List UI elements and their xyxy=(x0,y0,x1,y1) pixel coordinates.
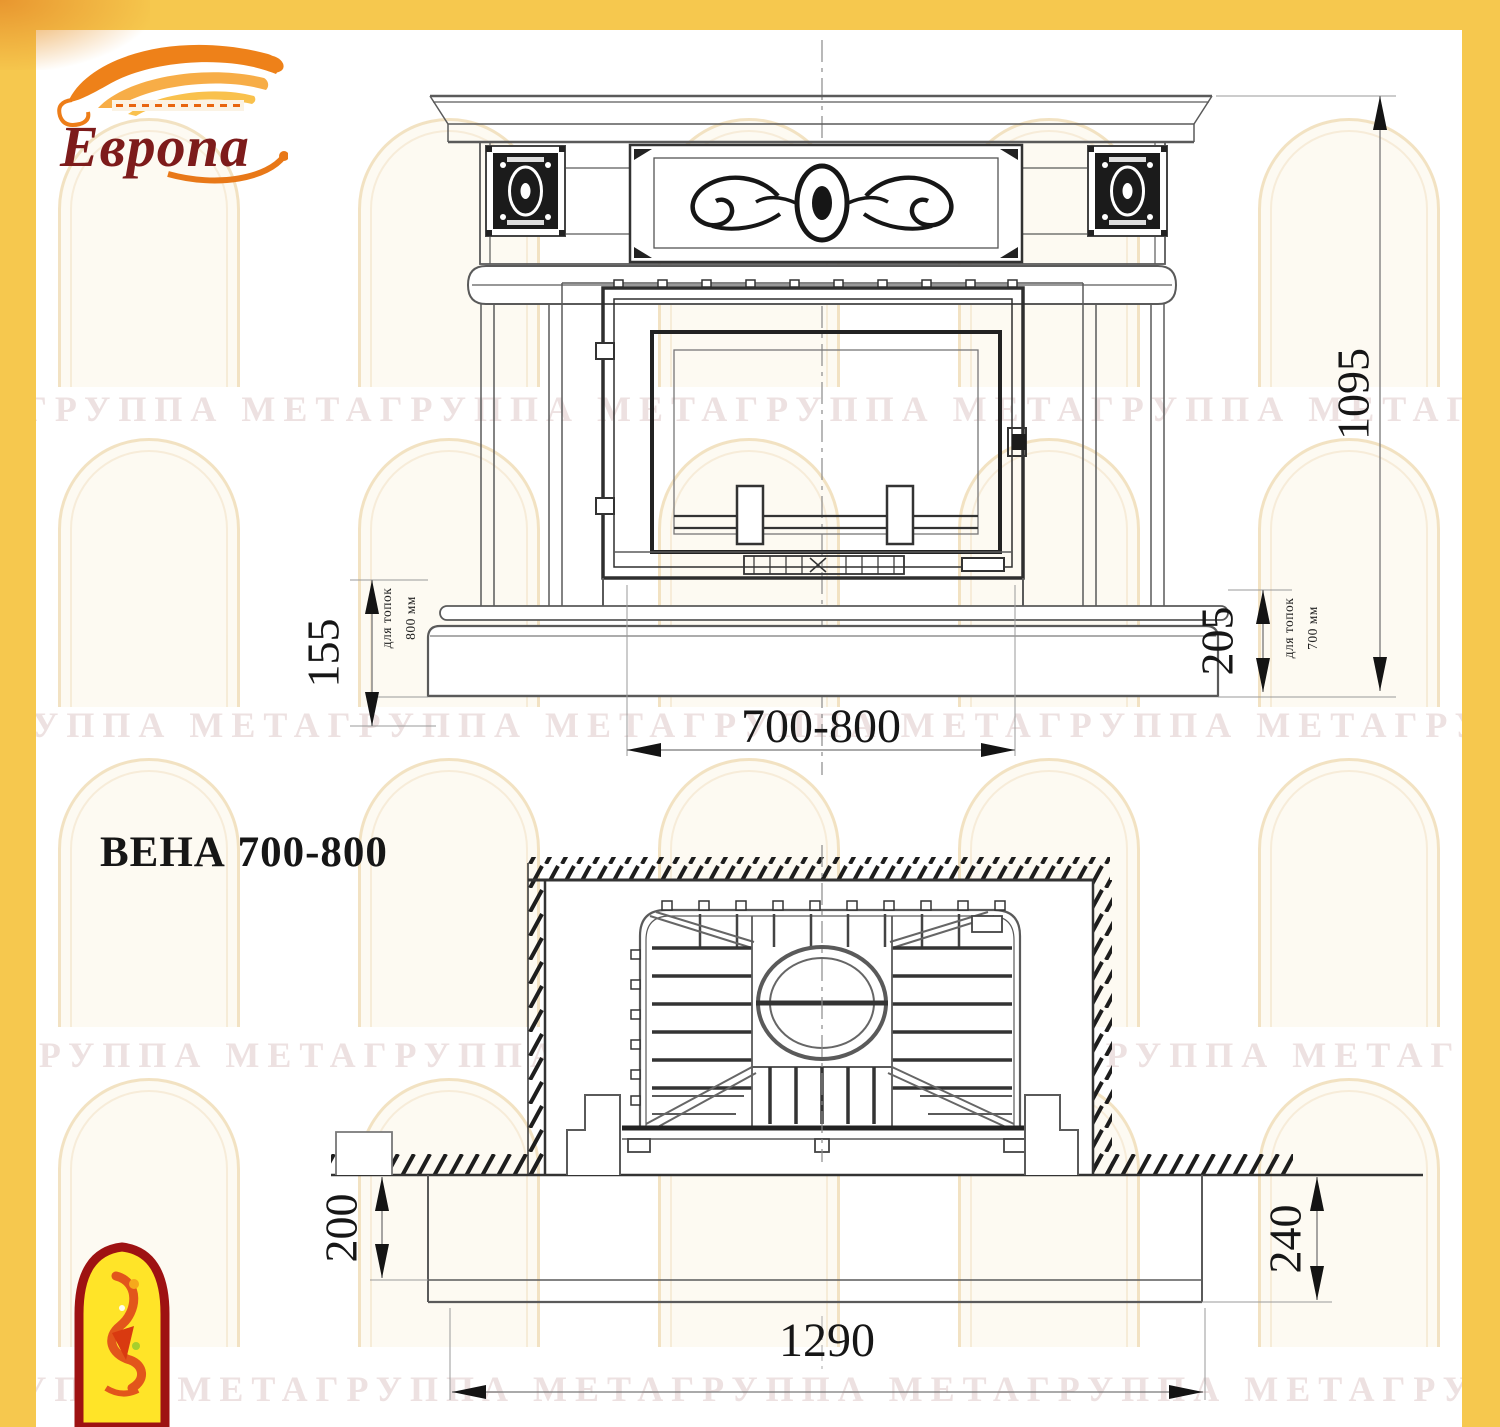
dim-700-800: 700-800 xyxy=(741,700,901,753)
log-retainer-right xyxy=(887,486,913,544)
ornament-panel-center xyxy=(630,145,1022,262)
log-retainer-left xyxy=(737,486,763,544)
side-block-left xyxy=(336,1132,392,1175)
dim-1290: 1290 xyxy=(779,1314,875,1367)
ornament-grille-right xyxy=(1088,146,1167,236)
logo-ribbon xyxy=(112,100,244,111)
ornament-grille-left xyxy=(486,146,565,236)
wall-hatch-right xyxy=(1093,880,1112,1175)
front-elevation xyxy=(428,40,1228,775)
dim-200: 200 xyxy=(316,1194,367,1263)
page-border-left xyxy=(0,0,36,1427)
plan-dimensions: 200 240 1290 xyxy=(316,1177,1332,1399)
spec-sheet-page: ГРУППА МЕТАГРУППА МЕТАГРУППА МЕТАГРУППА … xyxy=(0,0,1500,1427)
door-handle xyxy=(962,558,1004,571)
dim-155: 155 xyxy=(298,619,349,688)
mantel-shelf xyxy=(430,96,1212,142)
plan-view xyxy=(331,845,1423,1372)
model-title: ВЕНА 700-800 xyxy=(100,828,388,877)
technical-drawing: 155 для топок 800 мм 205 для топок 700 м… xyxy=(0,0,1500,1427)
dim-205-note1: для топок xyxy=(1281,598,1296,659)
europa-logo: Европа xyxy=(28,16,288,186)
wall-hatch-left xyxy=(528,880,545,1175)
dim-1095: 1095 xyxy=(1328,348,1379,440)
brand-name: Европа xyxy=(59,114,250,179)
page-border-right xyxy=(1462,0,1500,1427)
dim-155-note1: для топок xyxy=(379,588,394,649)
arch-emblem xyxy=(70,1238,174,1427)
hearth-slab xyxy=(428,1175,1202,1302)
glass-door xyxy=(652,332,1000,552)
damper-handle xyxy=(972,916,1002,932)
dim-155-note2: 800 мм xyxy=(403,596,418,640)
dim-205-note2: 700 мм xyxy=(1305,606,1320,650)
firebox-insert-front xyxy=(596,280,1026,606)
pilaster-right xyxy=(1083,283,1164,618)
flame-swoosh-icon xyxy=(59,45,286,125)
floor-hatch-right xyxy=(1093,1154,1293,1175)
dim-205: 205 xyxy=(1192,607,1243,676)
hinge-bottom xyxy=(596,498,614,514)
wall-hatch-top xyxy=(528,857,1110,880)
hinge-top xyxy=(596,343,614,359)
pilaster-left xyxy=(481,283,562,618)
dim-240: 240 xyxy=(1260,1205,1311,1274)
sub-plinth xyxy=(440,606,1228,620)
air-vent-grille xyxy=(744,556,904,574)
